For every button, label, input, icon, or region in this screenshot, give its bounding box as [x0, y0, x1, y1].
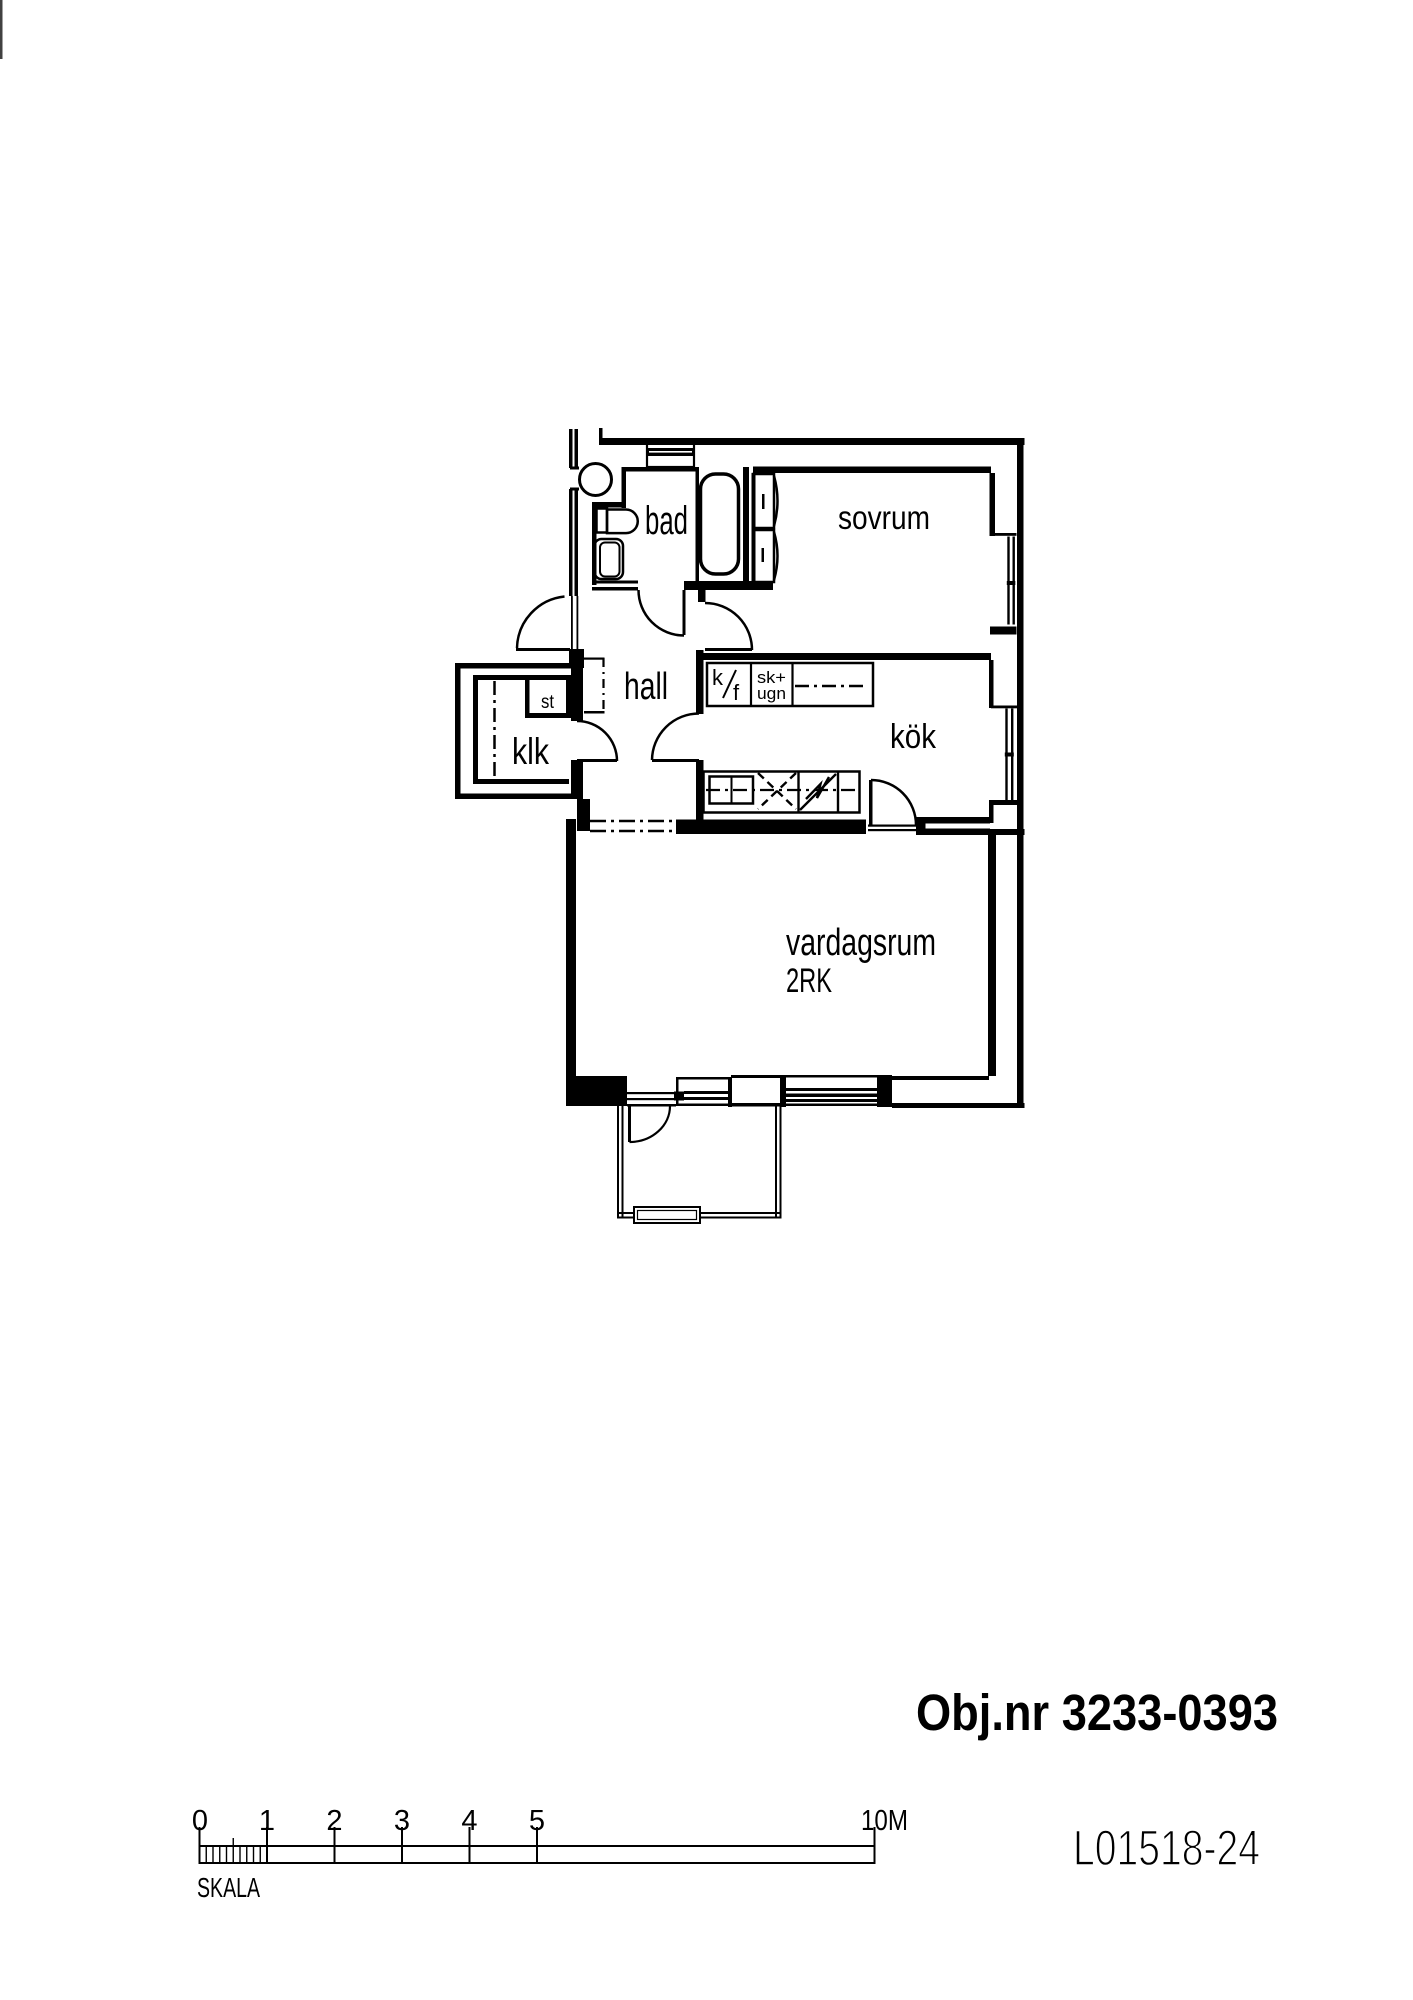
svg-text:SKALA: SKALA [197, 1872, 260, 1903]
svg-text:f: f [733, 680, 740, 705]
svg-text:klk: klk [512, 731, 549, 772]
svg-text:kök: kök [890, 718, 937, 756]
svg-text:0: 0 [192, 1805, 208, 1837]
svg-text:L01518-24: L01518-24 [1073, 1820, 1260, 1876]
svg-text:bad: bad [645, 499, 688, 543]
svg-text:vardagsrum: vardagsrum [786, 922, 936, 964]
svg-text:Obj.nr 3233-0393: Obj.nr 3233-0393 [916, 1684, 1278, 1741]
svg-text:k: k [712, 665, 724, 690]
svg-text:sovrum: sovrum [838, 499, 930, 536]
svg-text:1: 1 [259, 1805, 275, 1837]
svg-text:10M: 10M [861, 1805, 908, 1837]
svg-text:2RK: 2RK [786, 962, 832, 1000]
svg-text:3: 3 [394, 1805, 410, 1837]
svg-text:4: 4 [461, 1805, 477, 1837]
svg-text:st: st [541, 692, 555, 713]
svg-text:ugn: ugn [757, 684, 786, 703]
svg-text:hall: hall [624, 666, 668, 708]
svg-text:2: 2 [326, 1805, 342, 1837]
svg-text:5: 5 [529, 1805, 545, 1837]
